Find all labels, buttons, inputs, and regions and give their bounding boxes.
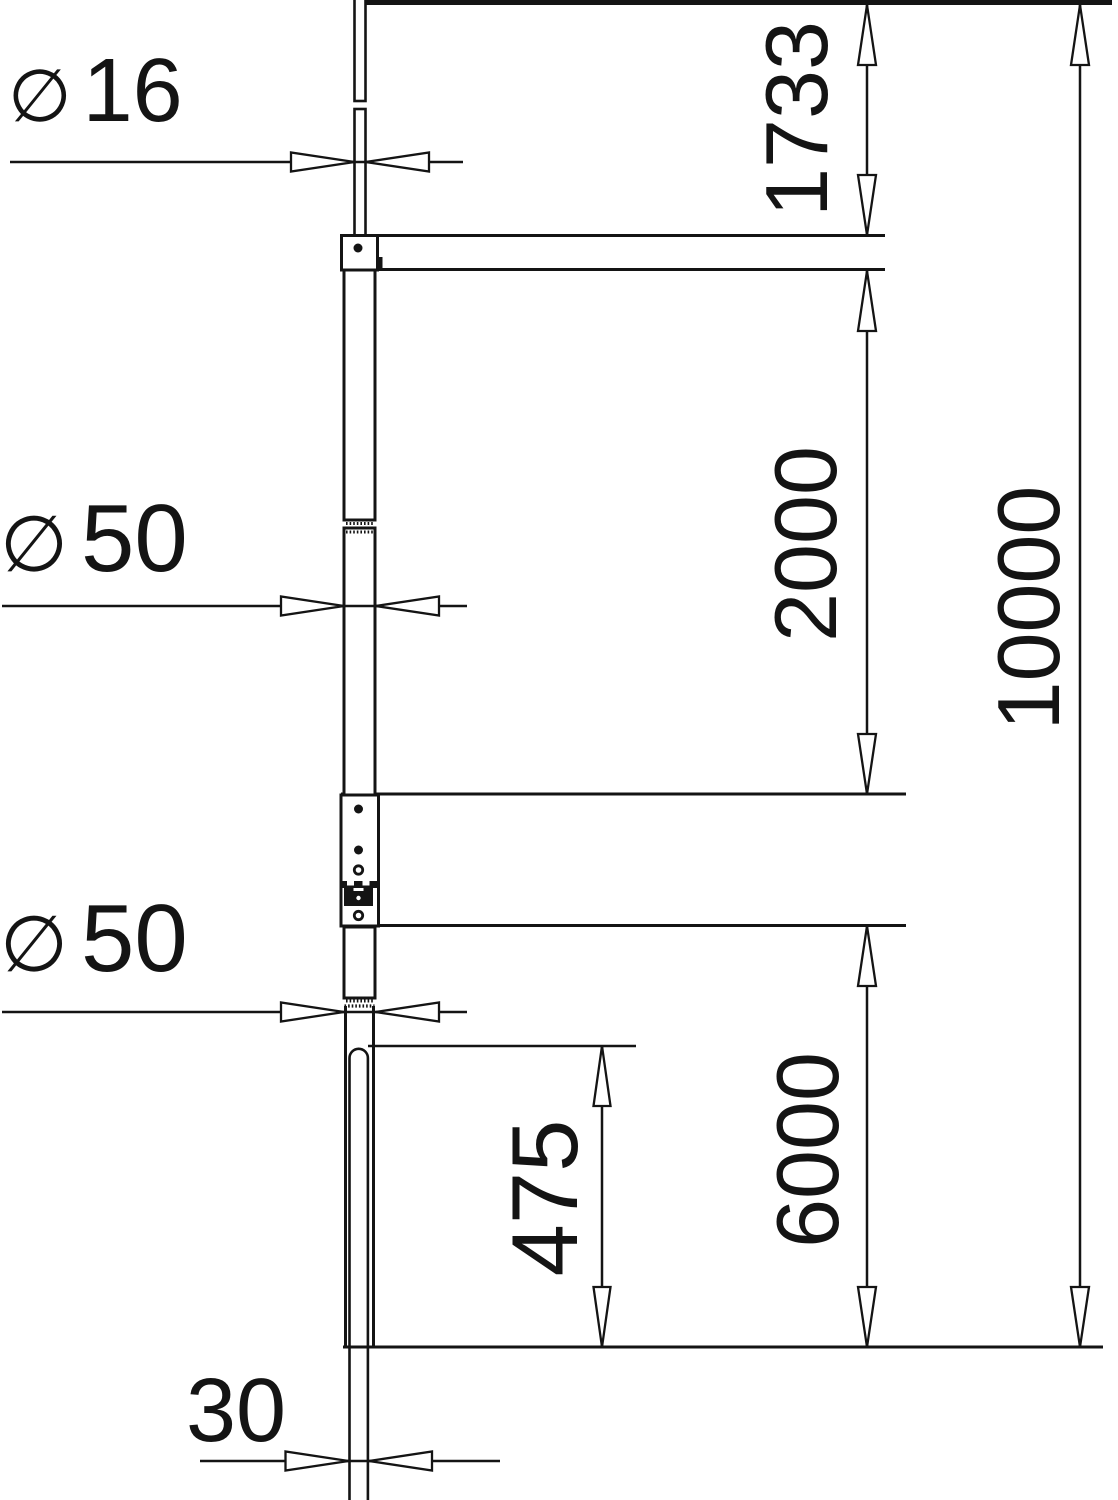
arrow-right-icon — [281, 597, 344, 616]
top-rod-upper-segment — [355, 0, 366, 101]
arrow-up-icon — [1071, 5, 1089, 65]
arrow-up-icon — [858, 271, 876, 331]
arrow-right-icon — [291, 153, 355, 172]
dim-text-1733: 1733 — [753, 21, 841, 217]
arrow-down-icon — [858, 175, 876, 235]
arrow-right-icon — [286, 1452, 349, 1471]
arrow-right-icon — [281, 1003, 344, 1022]
arrow-down-icon — [1071, 1287, 1089, 1347]
arrow-down-icon — [858, 734, 876, 794]
upper-tube-segment-1 — [344, 270, 375, 520]
sleeve-rivet-dot — [354, 805, 363, 814]
dim-text-2000: 2000 — [762, 446, 850, 642]
block-side-tab — [377, 257, 383, 269]
label-upper-tube-diameter: ∅50 — [0, 491, 188, 587]
dim-text-10000: 10000 — [985, 486, 1073, 731]
technical-drawing-mast: ∅16 ∅50 ∅50 30 1733 2000 6000 10000 475 — [0, 0, 1118, 1500]
inner-rod — [350, 1049, 368, 1500]
sleeve-screw-hole — [354, 911, 362, 919]
coupling-sleeve — [341, 795, 379, 926]
diameter-symbol-icon: ∅ — [8, 60, 72, 133]
mast — [341, 0, 383, 1500]
arrow-left-icon — [376, 1003, 440, 1022]
arrow-down-icon — [594, 1287, 611, 1347]
arrow-down-icon — [858, 1287, 876, 1347]
arrow-left-icon — [376, 597, 440, 616]
arrow-up-icon — [858, 926, 876, 986]
dim-text-6000: 6000 — [764, 1052, 852, 1248]
horizontal-dimensions — [2, 153, 500, 1471]
sleeve-rivet-dot — [354, 846, 363, 855]
diameter-symbol-icon: ∅ — [0, 506, 68, 584]
arrow-up-icon — [858, 5, 876, 65]
arrow-up-icon — [594, 1046, 611, 1106]
arrow-left-icon — [366, 153, 430, 172]
lower-tube-segment-1 — [344, 927, 375, 998]
dim-text-475: 475 — [498, 1120, 592, 1277]
arrow-left-icon — [369, 1452, 432, 1471]
diameter-symbol-icon: ∅ — [0, 906, 68, 984]
sleeve-screw-hole — [354, 866, 362, 874]
width-value: 30 — [186, 1366, 286, 1456]
diameter-value: 50 — [81, 491, 188, 587]
connector-block — [342, 236, 378, 271]
top-rod-lower-segment — [355, 109, 366, 236]
diameter-value: 16 — [83, 46, 183, 136]
upper-tube-segment-2 — [344, 528, 375, 795]
label-rod-diameter: ∅16 — [8, 46, 183, 136]
sleeve-clamp — [341, 881, 379, 906]
label-base-rod-width: 30 — [186, 1366, 286, 1456]
label-lower-tube-diameter: ∅50 — [0, 891, 188, 987]
block-rivet-dot — [354, 244, 363, 253]
diameter-value: 50 — [81, 891, 188, 987]
